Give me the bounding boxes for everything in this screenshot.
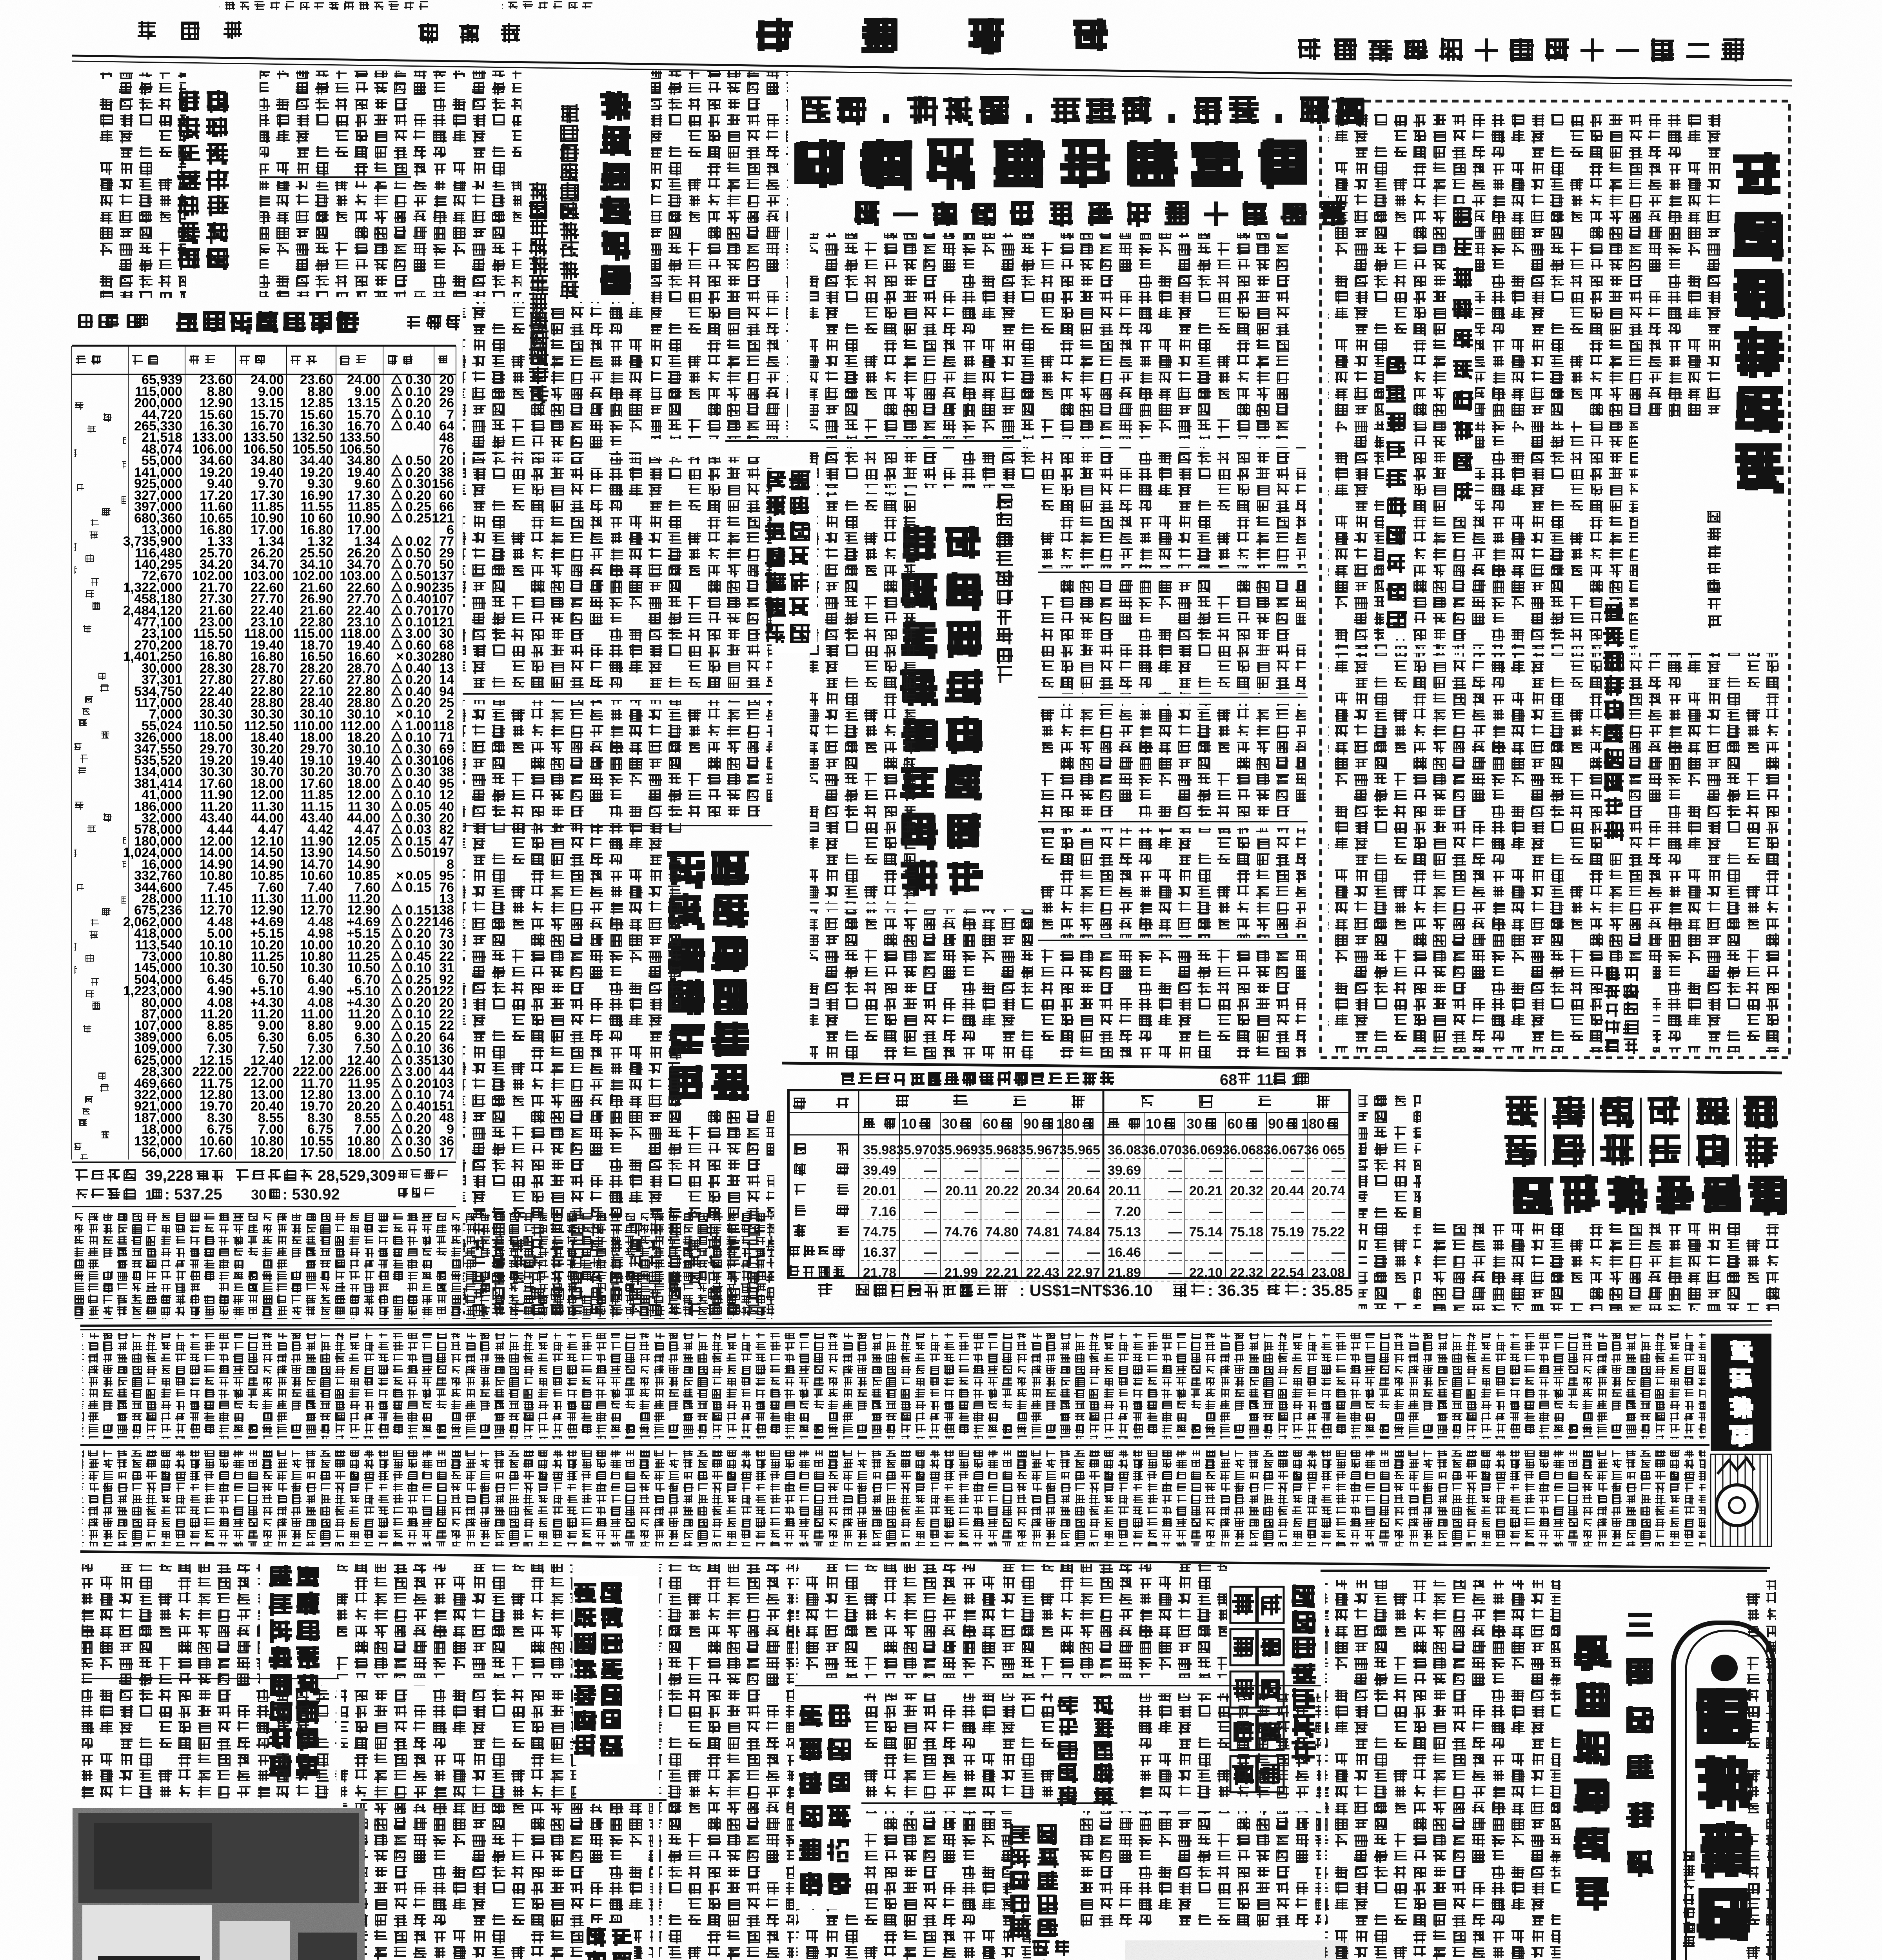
svg-text:74.76: 74.76 — [945, 1225, 978, 1240]
svg-text:—: — — [965, 1245, 978, 1260]
svg-text:—: — — [1005, 1245, 1019, 1260]
svg-text:—: — — [1005, 1204, 1019, 1219]
svg-text:35.968: 35.968 — [978, 1143, 1019, 1158]
svg-text:74.81: 74.81 — [1026, 1225, 1059, 1240]
svg-text:—: — — [1209, 1204, 1223, 1219]
svg-text:17: 17 — [439, 1145, 454, 1160]
svg-text:21.89: 21.89 — [1108, 1265, 1141, 1280]
svg-text:—: — — [1291, 1204, 1304, 1219]
svg-text:36.068: 36.068 — [1223, 1143, 1263, 1158]
svg-text:—: — — [1332, 1163, 1345, 1178]
svg-text:36.070: 36.070 — [1141, 1143, 1182, 1158]
svg-text:180: 180 — [1056, 1116, 1080, 1132]
svg-text:—: — — [924, 1163, 937, 1178]
svg-text:—: — — [1087, 1204, 1100, 1219]
svg-text:90: 90 — [1023, 1116, 1039, 1132]
svg-text:—: — — [924, 1245, 937, 1260]
svg-text:75.22: 75.22 — [1312, 1225, 1345, 1240]
svg-text:10: 10 — [1146, 1116, 1161, 1132]
svg-text:20.21: 20.21 — [1189, 1183, 1223, 1198]
svg-text:20.11: 20.11 — [1108, 1183, 1141, 1198]
svg-text:22.97: 22.97 — [1067, 1265, 1100, 1280]
svg-text:0.25: 0.25 — [405, 511, 431, 526]
svg-text:36.069: 36.069 — [1182, 1143, 1223, 1158]
svg-text:35.967: 35.967 — [1019, 1143, 1059, 1158]
svg-text:21.78: 21.78 — [863, 1265, 896, 1280]
svg-text:28,529,309: 28,529,309 — [318, 1167, 396, 1184]
svg-text:—: — — [1332, 1245, 1345, 1260]
svg-text:: 537.25: : 537.25 — [165, 1186, 222, 1203]
svg-text:20.64: 20.64 — [1067, 1183, 1100, 1198]
svg-text:—: — — [1168, 1245, 1182, 1260]
svg-text:—: — — [924, 1204, 937, 1219]
svg-text:68: 68 — [1220, 1071, 1237, 1089]
svg-text:30: 30 — [942, 1116, 957, 1132]
svg-text:20.32: 20.32 — [1230, 1183, 1263, 1198]
svg-text:74.75: 74.75 — [863, 1225, 896, 1240]
svg-text:×: × — [396, 868, 404, 883]
svg-text:—: — — [1250, 1245, 1263, 1260]
svg-text:60: 60 — [983, 1116, 998, 1132]
svg-text:—: — — [1046, 1163, 1059, 1178]
svg-text:17.60: 17.60 — [200, 1145, 233, 1160]
svg-text:—: — — [1087, 1163, 1100, 1178]
svg-text:—: — — [1168, 1204, 1182, 1219]
svg-text:×: × — [396, 649, 404, 664]
svg-text:60: 60 — [1227, 1116, 1243, 1132]
svg-text:: US$1=NT$36.10: : US$1=NT$36.10 — [1019, 1281, 1153, 1299]
svg-text:0.50: 0.50 — [405, 845, 431, 860]
svg-text:0.40: 0.40 — [405, 419, 431, 434]
svg-text:75.13: 75.13 — [1108, 1225, 1141, 1240]
svg-text:—: — — [1168, 1265, 1182, 1280]
svg-text:22.43: 22.43 — [1026, 1265, 1059, 1280]
svg-text:—: — — [924, 1265, 937, 1280]
svg-text:0.50: 0.50 — [405, 1145, 431, 1160]
svg-text:—: — — [965, 1163, 978, 1178]
svg-text:39,228: 39,228 — [145, 1167, 193, 1184]
svg-text:×: × — [396, 707, 404, 722]
svg-text:22.21: 22.21 — [985, 1265, 1019, 1280]
svg-text:20.22: 20.22 — [985, 1183, 1019, 1198]
svg-text:—: — — [1005, 1163, 1019, 1178]
svg-text:35.969: 35.969 — [937, 1143, 978, 1158]
svg-text:35.970: 35.970 — [896, 1143, 937, 1158]
svg-text:20.74: 20.74 — [1312, 1183, 1345, 1198]
svg-text:20.11: 20.11 — [945, 1183, 978, 1198]
svg-text:21.99: 21.99 — [945, 1265, 978, 1280]
svg-text:35.98: 35.98 — [863, 1143, 896, 1158]
svg-text:56,000: 56,000 — [142, 1145, 182, 1160]
svg-text:35.965: 35.965 — [1059, 1143, 1100, 1158]
svg-text:10: 10 — [901, 1116, 917, 1132]
svg-text:—: — — [1332, 1204, 1345, 1219]
svg-text:—: — — [1209, 1245, 1223, 1260]
svg-text:75.14: 75.14 — [1189, 1225, 1223, 1240]
svg-text:22.10: 22.10 — [1189, 1265, 1223, 1280]
svg-text:—: — — [1046, 1245, 1059, 1260]
svg-text:36.067: 36.067 — [1263, 1143, 1304, 1158]
svg-text:75.18: 75.18 — [1230, 1225, 1263, 1240]
svg-text:—: — — [1250, 1204, 1263, 1219]
svg-text:20.01: 20.01 — [863, 1183, 896, 1198]
svg-text:39.69: 39.69 — [1108, 1163, 1141, 1178]
svg-text:—: — — [1168, 1163, 1182, 1178]
svg-text:20.44: 20.44 — [1271, 1183, 1304, 1198]
svg-text:17.50: 17.50 — [300, 1145, 333, 1160]
svg-text:30: 30 — [1186, 1116, 1202, 1132]
svg-text:—: — — [924, 1225, 937, 1240]
svg-text:30: 30 — [251, 1187, 267, 1203]
svg-text:74.84: 74.84 — [1067, 1225, 1100, 1240]
svg-text:7.16: 7.16 — [870, 1204, 896, 1219]
svg-text:18.20: 18.20 — [251, 1145, 284, 1160]
svg-text:23.08: 23.08 — [1312, 1265, 1345, 1280]
svg-text:—: — — [1291, 1245, 1304, 1260]
svg-text:18.00: 18.00 — [347, 1145, 380, 1160]
svg-text:—: — — [1168, 1225, 1182, 1240]
svg-text:22.54: 22.54 — [1271, 1265, 1304, 1280]
svg-text:74.80: 74.80 — [985, 1225, 1019, 1240]
svg-text:39.49: 39.49 — [863, 1163, 896, 1178]
svg-text:16.46: 16.46 — [1108, 1245, 1141, 1260]
svg-text:36.08: 36.08 — [1108, 1143, 1141, 1158]
svg-text:0.15: 0.15 — [405, 880, 431, 895]
svg-text:22.32: 22.32 — [1230, 1265, 1263, 1280]
svg-text:20.34: 20.34 — [1026, 1183, 1059, 1198]
svg-text:—: — — [1291, 1163, 1304, 1178]
svg-text:75.19: 75.19 — [1271, 1225, 1304, 1240]
svg-text:: 36.35: : 36.35 — [1208, 1281, 1259, 1299]
svg-text:—: — — [1046, 1204, 1059, 1219]
svg-text:7.20: 7.20 — [1115, 1204, 1141, 1219]
svg-text:180: 180 — [1301, 1116, 1324, 1132]
svg-text:36 065: 36 065 — [1304, 1143, 1345, 1158]
svg-text:—: — — [1168, 1183, 1182, 1198]
svg-text:—: — — [1250, 1163, 1263, 1178]
svg-text:: 35.85: : 35.85 — [1302, 1281, 1353, 1299]
svg-text:16.37: 16.37 — [863, 1245, 896, 1260]
svg-text:90: 90 — [1268, 1116, 1284, 1132]
svg-text:: 530.92: : 530.92 — [282, 1186, 340, 1203]
svg-text:11: 11 — [1257, 1071, 1273, 1089]
svg-text:—: — — [1209, 1163, 1223, 1178]
svg-text:—: — — [1087, 1245, 1100, 1260]
svg-text:—: — — [924, 1183, 937, 1198]
svg-text:—: — — [965, 1204, 978, 1219]
